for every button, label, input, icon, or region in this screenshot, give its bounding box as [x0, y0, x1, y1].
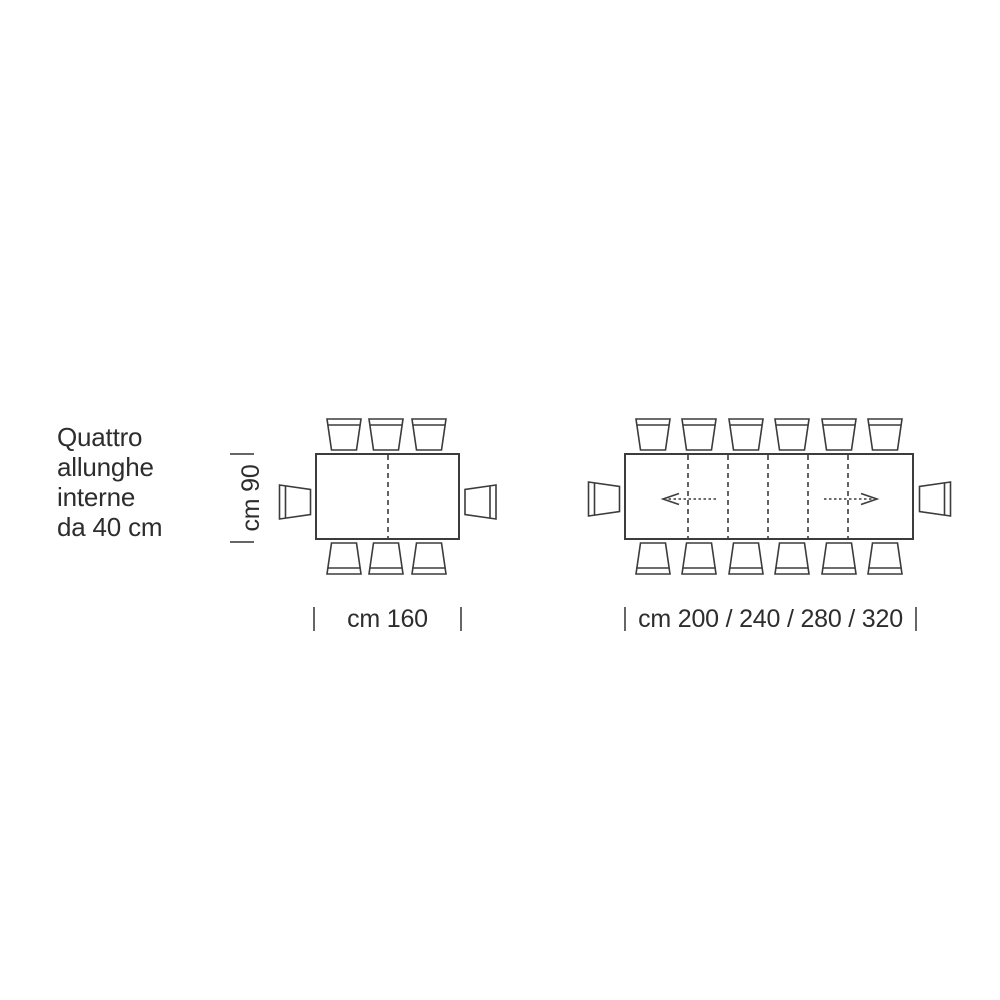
chair-icon [822, 543, 856, 574]
product-note-line: da 40 cm [57, 512, 162, 542]
dimension-tick [915, 607, 917, 631]
chair-icon [775, 543, 809, 574]
chair-icon [412, 419, 446, 450]
dimension-tick [230, 453, 254, 455]
diagram-canvas: Quattro allunghe interne da 40 cm cm 90 … [0, 0, 1000, 1000]
chair-icon [868, 543, 902, 574]
chair-icon [369, 543, 403, 574]
chair-icon [682, 419, 716, 450]
chair-icon [280, 485, 311, 519]
chair-icon [327, 543, 361, 574]
chair-icon [369, 419, 403, 450]
chair-icon [868, 419, 902, 450]
dimension-tick [624, 607, 626, 631]
product-note-line: allunghe [57, 452, 162, 482]
chair-icon [775, 419, 809, 450]
chair-icon [636, 419, 670, 450]
chair-icon [327, 419, 361, 450]
extended-width-label: cm 200 / 240 / 280 / 320 [632, 605, 909, 634]
chair-icon [822, 419, 856, 450]
closed-table-diagram [260, 398, 510, 588]
depth-dimension: cm 90 [227, 453, 257, 543]
product-note: Quattro allunghe interne da 40 cm [57, 422, 162, 542]
product-note-line: interne [57, 482, 162, 512]
chair-icon [589, 482, 620, 516]
chair-icon [729, 419, 763, 450]
extended-width-dimension: cm 200 / 240 / 280 / 320 [624, 604, 917, 634]
product-note-line: Quattro [57, 422, 162, 452]
dimension-tick [230, 541, 254, 543]
chair-icon [412, 543, 446, 574]
dimension-tick [313, 607, 315, 631]
closed-width-dimension: cm 160 [313, 604, 462, 634]
chair-icon [636, 543, 670, 574]
dimension-tick [460, 607, 462, 631]
chair-icon [682, 543, 716, 574]
extended-table-diagram [570, 398, 970, 588]
closed-width-label: cm 160 [341, 605, 434, 634]
chair-icon [465, 485, 496, 519]
chair-icon [920, 482, 951, 516]
chair-icon [729, 543, 763, 574]
